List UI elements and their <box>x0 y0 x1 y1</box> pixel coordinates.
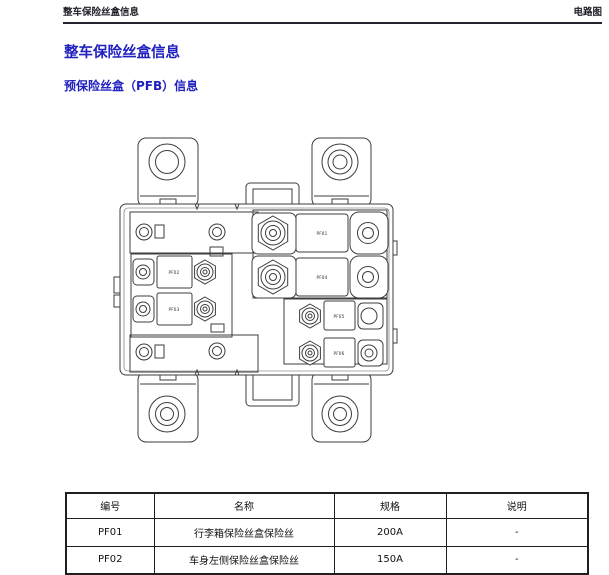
table-row: PF02 车身左侧保险丝盒保险丝 150A - <box>66 546 588 574</box>
col-header-name: 名称 <box>154 493 334 518</box>
running-header-left: 整车保险丝盒信息 <box>63 4 139 18</box>
cell-note: - <box>446 518 588 546</box>
page-title: 整车保险丝盒信息 <box>64 41 180 62</box>
terminal-pf06 <box>358 340 383 366</box>
mount-tab-bottom-left <box>138 372 198 442</box>
fuse-label-pf05: PF05 <box>333 314 344 319</box>
cell-spec: 200A <box>334 518 446 546</box>
mount-tab-top-right <box>312 138 371 207</box>
table-row: PF01 行李箱保险丝盒保险丝 200A - <box>66 518 588 546</box>
terminal-pf01 <box>350 212 388 254</box>
col-header-note: 说明 <box>446 493 588 518</box>
section-subtitle: 预保险丝盒（PFB）信息 <box>64 77 198 94</box>
fuse-label-pf04: PF04 <box>316 275 327 280</box>
fuse-label-pf02: PF02 <box>168 270 179 275</box>
manual-page: { "header": { "left": "整车保险丝盒信息", "right… <box>0 0 609 564</box>
terminal-pf05 <box>358 303 383 329</box>
fuse-label-pf03: PF03 <box>168 307 179 312</box>
mount-tab-bottom-right <box>312 372 371 442</box>
cell-name: 车身左侧保险丝盒保险丝 <box>154 546 334 574</box>
cell-note: - <box>446 546 588 574</box>
fuse-spec-table: 编号 名称 规格 说明 PF01 行李箱保险丝盒保险丝 200A - PF02 … <box>65 492 589 575</box>
col-header-spec: 规格 <box>334 493 446 518</box>
fuse-label-pf06: PF06 <box>333 351 344 356</box>
running-header-right: 电路图 <box>573 4 602 18</box>
mount-tab-top-left <box>138 138 198 207</box>
fuse-box-line-drawing: PF01 PF04 PF02 PF03 <box>100 125 410 465</box>
cell-name: 行李箱保险丝盒保险丝 <box>154 518 334 546</box>
running-header: 整车保险丝盒信息 电路图 <box>63 4 602 24</box>
col-header-number: 编号 <box>66 493 154 518</box>
cell-number: PF01 <box>66 518 154 546</box>
cell-number: PF02 <box>66 546 154 574</box>
table-header-row: 编号 名称 规格 说明 <box>66 493 588 518</box>
terminal-pf04 <box>350 256 388 298</box>
fuse-label-pf01: PF01 <box>316 231 327 236</box>
prefuse-box-diagram: PF01 PF04 PF02 PF03 <box>100 125 410 465</box>
cell-spec: 150A <box>334 546 446 574</box>
